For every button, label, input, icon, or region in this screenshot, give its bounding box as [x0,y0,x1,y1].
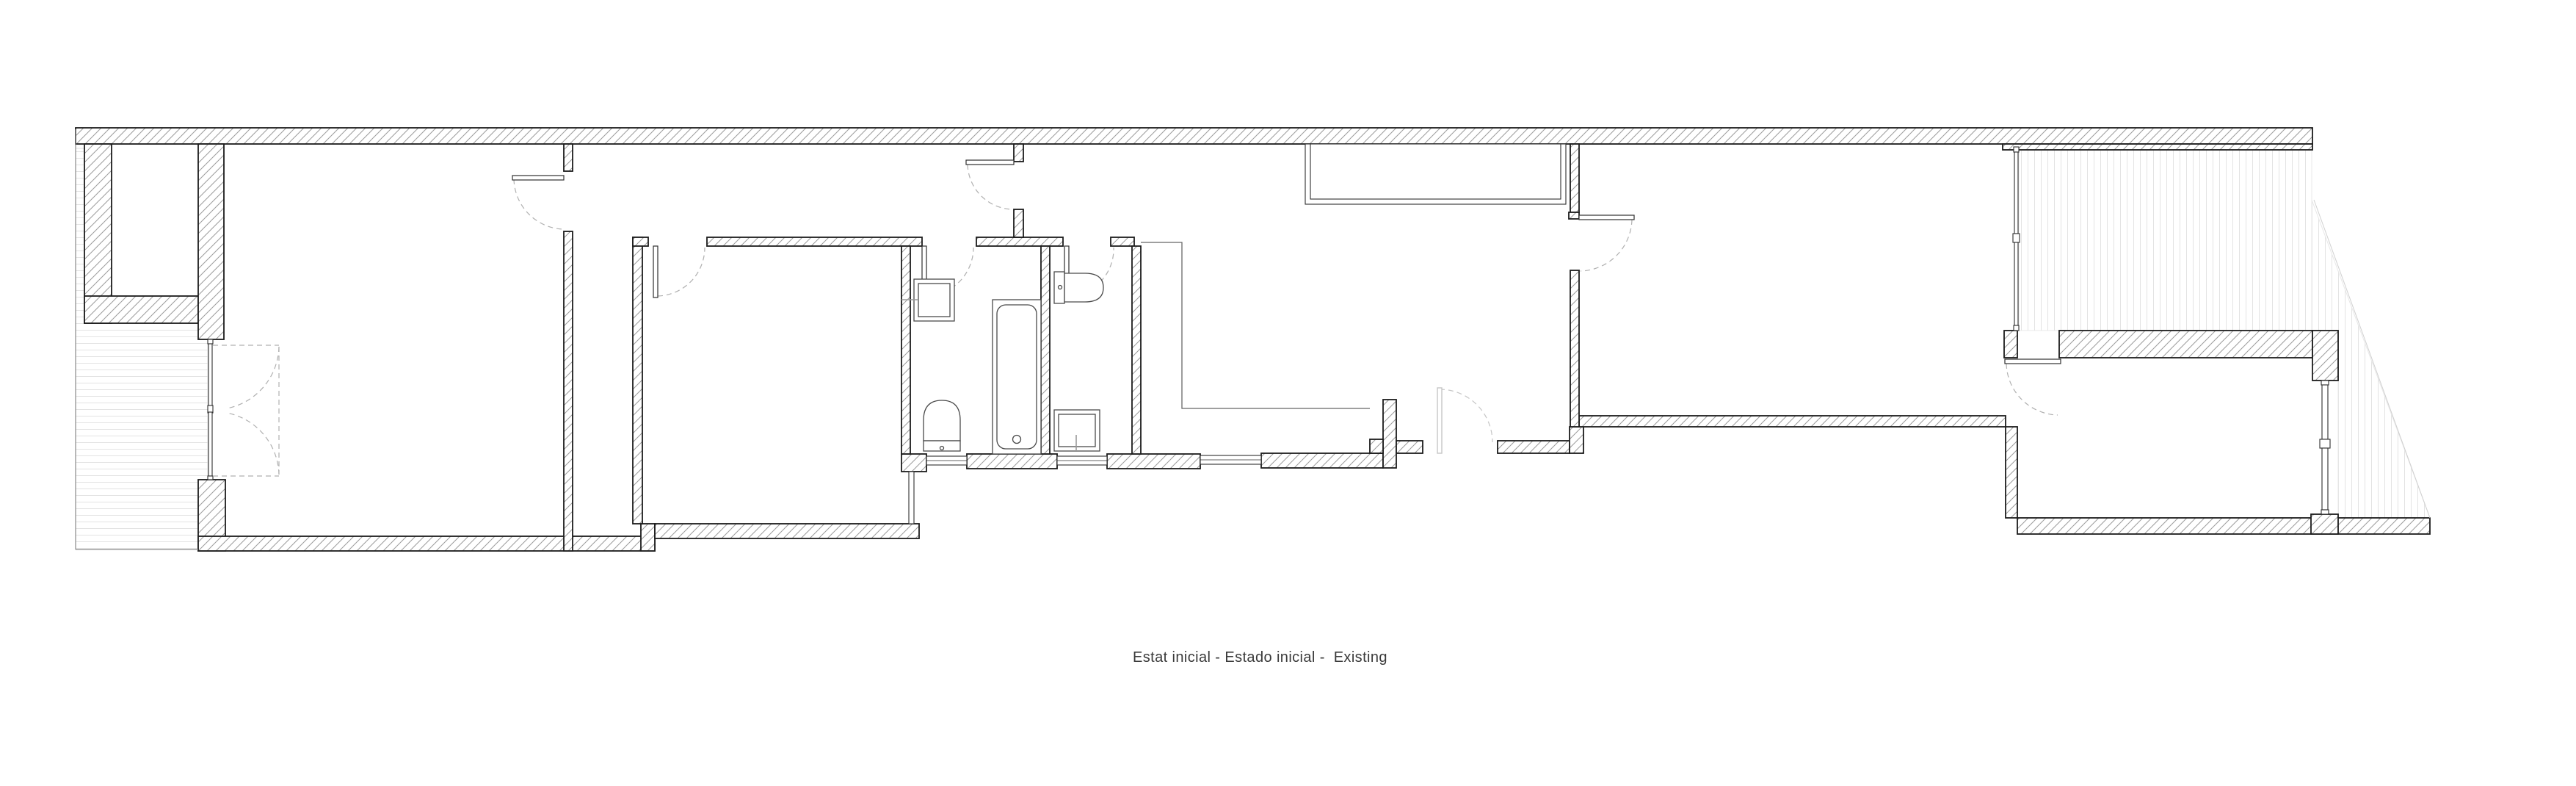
wall [1261,453,1383,468]
fixture [1059,414,1095,447]
wall [633,237,648,246]
fixture [1059,286,1062,289]
wall [1498,441,1570,453]
thin-wall-or-window [2321,381,2329,385]
wall [707,237,922,246]
fixture [1013,436,1021,444]
thin-wall-or-window [2322,448,2328,510]
door-swing-arc [658,248,705,296]
thin-wall-or-window [208,476,213,480]
door-leaf [653,246,658,298]
wall [1014,209,1023,237]
wall [901,246,910,454]
wall [976,237,1063,246]
thin-wall-or-window [2321,510,2329,514]
wall [641,524,655,551]
thin-wall-or-window [208,344,212,408]
wall [655,524,919,538]
wall [901,454,926,472]
wall [2059,331,2312,358]
door-leaf [512,176,564,180]
fixture [997,305,1037,449]
wall [2004,331,2017,358]
wall [1132,246,1141,454]
fixture [1064,273,1103,302]
door-swing-arc [227,347,279,408]
door-swing-arc [213,345,279,476]
door-leaf [966,160,1014,165]
door-leaves-layer [512,160,2061,453]
thin-wall-or-window [2014,242,2018,325]
thin-wall-or-window [2013,234,2020,242]
thin-wall-or-window [2014,152,2018,234]
bathroom-fixtures-layer [901,272,1103,454]
caption-text: Estat inicial - Estado inicial - Existin… [1133,649,1387,666]
door-swing-arc [514,179,562,229]
wall [564,231,573,551]
wall [1041,246,1050,454]
wall [1111,237,1134,246]
wall [1383,400,1396,468]
entry-door-swing-arc [1440,389,1492,442]
wall [967,454,1057,469]
wall [84,296,198,323]
wall [1570,270,1579,427]
wall [198,144,224,339]
wall [1014,144,1023,162]
wall [1570,427,1583,453]
wall [564,144,573,171]
fixture [940,447,944,450]
wall [76,128,2312,144]
door-leaf [2005,359,2061,364]
door-swing-arc [2006,364,2058,415]
thin-wall-or-window [208,339,213,344]
wall [1370,439,1383,453]
wall [1570,144,1579,212]
wall [2017,518,2430,534]
wall [2311,514,2338,534]
thin-wall-or-window [208,412,212,476]
wall [2003,144,2312,150]
thin-wall-or-window [1310,144,1561,199]
door-leaf [1579,215,1634,220]
fixture [924,400,960,441]
wall [1107,454,1200,469]
wall [198,536,655,551]
deck-area [2019,148,2312,331]
floor-plan-drawing [0,0,2576,786]
floor-plan-page: Estat inicial - Estado inicial - Existin… [0,0,2576,786]
door-swing-arc [227,413,279,475]
thin-wall-or-window [909,472,914,524]
thin-wall-or-window [2320,439,2330,448]
wall [2312,331,2338,381]
wall [1579,416,2006,427]
entry-door-leaf [1437,388,1442,453]
wall [1569,212,1579,219]
thin-wall-or-window [2322,385,2328,439]
door-swing-arc [1581,220,1632,271]
wall [2006,427,2017,518]
thin-wall-or-window [2014,325,2019,331]
thin-wall-or-window [2014,147,2019,152]
wall [1396,441,1423,453]
door-swing-arc [968,165,1012,209]
fixture [918,284,950,317]
wall [633,237,642,524]
boundary-line [1141,242,1370,408]
